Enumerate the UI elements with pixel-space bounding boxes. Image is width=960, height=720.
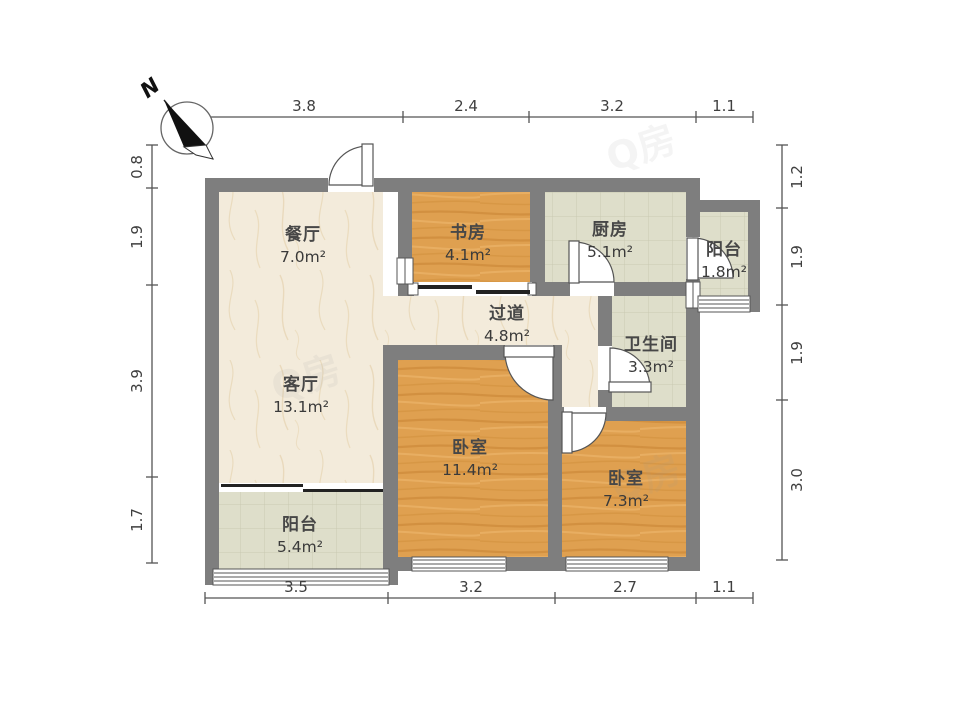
floorplan-drawing (0, 0, 960, 720)
floor-kitchen (545, 192, 686, 282)
floor-dining-living (219, 192, 383, 485)
floor-balcony-bottom (219, 492, 383, 571)
north-arrow-icon (161, 100, 213, 159)
window-bedroom-second (566, 557, 668, 571)
window-study-left (397, 258, 413, 284)
window-balcony-bottom (213, 569, 389, 585)
window-bedroom-main (412, 557, 506, 571)
window-balcony-top (698, 296, 750, 312)
floor-hallway-strip (562, 345, 598, 407)
floor-hallway (383, 296, 598, 345)
floor-study (412, 192, 530, 282)
door-entry (329, 144, 373, 186)
floorplan: Q房 Q房 Q房 N 餐厅 7.0m² 书房 4.1m² 厨房 5.1m² 阳台… (0, 0, 960, 720)
floors (219, 192, 748, 571)
